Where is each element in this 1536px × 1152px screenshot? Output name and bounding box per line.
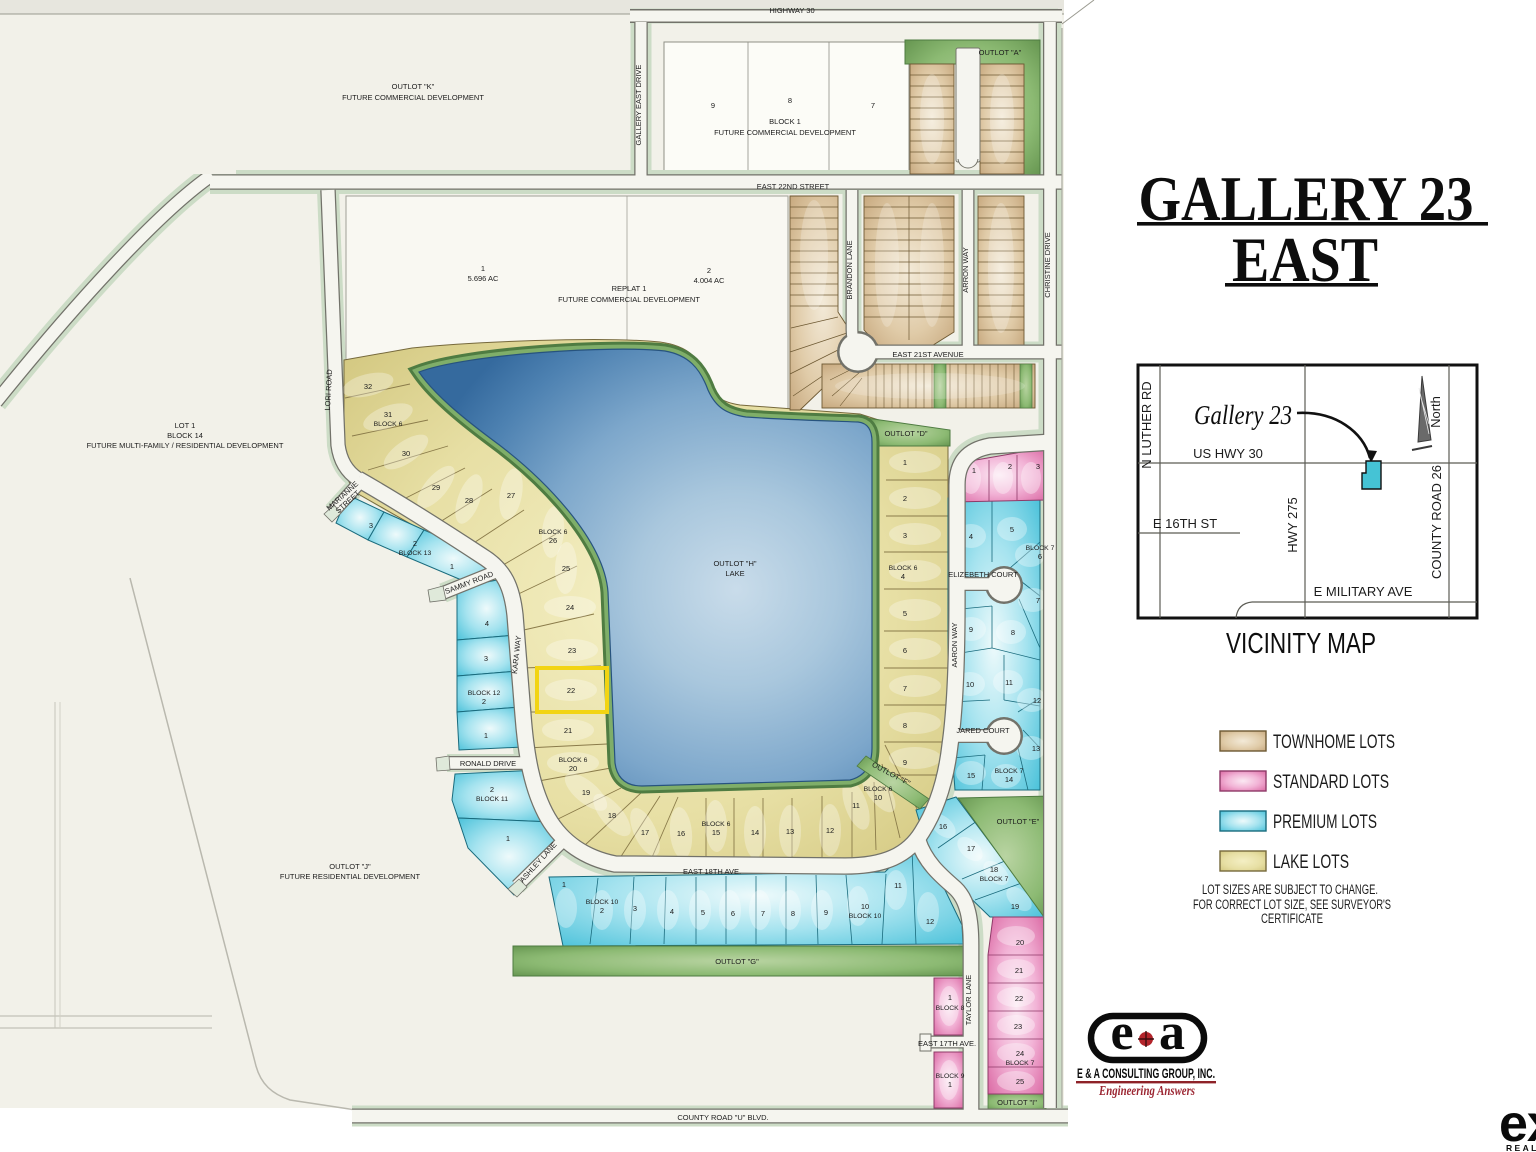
svg-text:17: 17 <box>967 844 975 853</box>
svg-text:BLOCK 8: BLOCK 8 <box>936 1005 965 1012</box>
svg-text:1: 1 <box>506 834 510 843</box>
svg-text:Engineering Answers: Engineering Answers <box>1098 1084 1195 1099</box>
svg-text:13: 13 <box>1032 744 1040 753</box>
svg-text:30: 30 <box>402 449 410 458</box>
svg-text:8: 8 <box>903 721 907 730</box>
svg-text:12: 12 <box>1033 696 1041 705</box>
svg-text:7: 7 <box>1036 596 1040 605</box>
svg-text:9: 9 <box>969 625 973 634</box>
svg-text:5.696 AC: 5.696 AC <box>468 274 499 283</box>
svg-text:15: 15 <box>712 828 720 837</box>
svg-text:23: 23 <box>1014 1022 1022 1031</box>
svg-text:ELIZEBETH COURT: ELIZEBETH COURT <box>948 570 1018 579</box>
svg-text:6: 6 <box>1038 552 1042 561</box>
svg-text:Gallery 23: Gallery 23 <box>1194 400 1292 430</box>
svg-text:a: a <box>1159 1004 1185 1061</box>
svg-text:BLOCK 6: BLOCK 6 <box>559 757 588 764</box>
svg-text:FUTURE RESIDENTIAL DEVELOPMENT: FUTURE RESIDENTIAL DEVELOPMENT <box>280 872 421 881</box>
svg-text:1: 1 <box>972 466 976 475</box>
svg-text:COUNTY ROAD "U" BLVD.: COUNTY ROAD "U" BLVD. <box>677 1113 768 1122</box>
svg-text:EAST 22ND STREET: EAST 22ND STREET <box>757 182 830 191</box>
svg-text:23: 23 <box>568 646 576 655</box>
svg-text:29: 29 <box>432 483 440 492</box>
svg-text:BLOCK 6: BLOCK 6 <box>864 786 893 793</box>
svg-text:4: 4 <box>485 619 489 628</box>
svg-text:22: 22 <box>1015 994 1023 1003</box>
svg-text:GALLERY EAST DRIVE: GALLERY EAST DRIVE <box>634 65 643 146</box>
svg-text:15: 15 <box>967 771 975 780</box>
svg-text:BLOCK 6: BLOCK 6 <box>702 821 731 828</box>
svg-text:28: 28 <box>465 496 473 505</box>
svg-text:25: 25 <box>562 564 570 573</box>
svg-text:FUTURE COMMERCIAL DEVELOPMENT: FUTURE COMMERCIAL DEVELOPMENT <box>342 93 484 102</box>
svg-text:5: 5 <box>701 908 705 917</box>
svg-text:2: 2 <box>903 494 907 503</box>
svg-text:7: 7 <box>761 909 765 918</box>
svg-text:14: 14 <box>751 828 759 837</box>
svg-text:5: 5 <box>903 609 907 618</box>
svg-text:1: 1 <box>948 993 952 1002</box>
svg-text:25: 25 <box>1016 1077 1024 1086</box>
svg-text:FUTURE COMMERCIAL DEVELOPMENT: FUTURE COMMERCIAL DEVELOPMENT <box>558 295 700 304</box>
svg-text:14: 14 <box>1005 775 1013 784</box>
svg-text:3: 3 <box>1036 462 1040 471</box>
svg-text:TOWNHOME LOTS: TOWNHOME LOTS <box>1273 731 1395 753</box>
svg-text:LOT SIZES ARE SUBJECT TO CHANG: LOT SIZES ARE SUBJECT TO CHANGE. <box>1202 882 1378 897</box>
svg-text:BLOCK 13: BLOCK 13 <box>399 550 432 557</box>
svg-text:AARON WAY: AARON WAY <box>950 622 959 667</box>
svg-text:1: 1 <box>481 264 485 273</box>
svg-text:BLOCK 7: BLOCK 7 <box>1006 1060 1035 1067</box>
svg-text:CHRISTINE DRIVE: CHRISTINE DRIVE <box>1043 232 1052 297</box>
svg-text:9: 9 <box>711 101 715 110</box>
svg-text:24: 24 <box>566 603 574 612</box>
svg-text:2: 2 <box>490 785 494 794</box>
svg-text:3: 3 <box>633 904 637 913</box>
svg-text:19: 19 <box>1011 902 1019 911</box>
svg-text:ARRON WAY: ARRON WAY <box>961 247 970 292</box>
svg-text:7: 7 <box>871 101 875 110</box>
svg-text:BLOCK 11: BLOCK 11 <box>476 796 508 803</box>
svg-text:LOT 1: LOT 1 <box>175 421 196 430</box>
svg-text:VICINITY MAP: VICINITY MAP <box>1226 628 1376 660</box>
svg-text:2: 2 <box>600 906 604 915</box>
svg-text:16: 16 <box>677 829 685 838</box>
svg-text:BLOCK 1: BLOCK 1 <box>769 117 801 126</box>
svg-text:7: 7 <box>903 684 907 693</box>
svg-text:21: 21 <box>564 726 572 735</box>
svg-text:27: 27 <box>507 491 515 500</box>
svg-text:BLOCK 6: BLOCK 6 <box>889 565 918 572</box>
svg-text:19: 19 <box>582 788 590 797</box>
svg-text:10: 10 <box>861 902 869 911</box>
svg-text:BLOCK 14: BLOCK 14 <box>167 431 203 440</box>
svg-text:OUTLOT "K": OUTLOT "K" <box>392 82 435 91</box>
svg-text:FUTURE MULTI-FAMILY / RESIDENT: FUTURE MULTI-FAMILY / RESIDENTIAL DEVELO… <box>87 441 284 450</box>
svg-text:2: 2 <box>1008 462 1012 471</box>
svg-text:BLOCK 6: BLOCK 6 <box>539 529 568 536</box>
svg-text:18: 18 <box>608 811 616 820</box>
svg-text:3: 3 <box>903 531 907 540</box>
svg-text:22: 22 <box>567 686 575 695</box>
svg-text:1: 1 <box>562 880 566 889</box>
svg-text:BLOCK 10: BLOCK 10 <box>586 899 619 906</box>
svg-text:BLOCK 7: BLOCK 7 <box>995 768 1024 775</box>
svg-text:3: 3 <box>484 654 488 663</box>
svg-text:BLOCK 9: BLOCK 9 <box>936 1073 965 1080</box>
svg-text:FOR CORRECT LOT SIZE, SEE SURV: FOR CORRECT LOT SIZE, SEE SURVEYOR'S <box>1193 897 1391 912</box>
svg-text:EAST 21ST AVENUE: EAST 21ST AVENUE <box>892 350 963 359</box>
svg-text:11: 11 <box>1005 678 1013 687</box>
svg-text:9: 9 <box>824 908 828 917</box>
svg-text:10: 10 <box>874 793 882 802</box>
svg-text:5: 5 <box>1010 525 1014 534</box>
svg-text:US HWY 30: US HWY 30 <box>1193 446 1263 461</box>
svg-text:4: 4 <box>670 907 674 916</box>
svg-text:E 16TH ST: E 16TH ST <box>1153 516 1217 531</box>
svg-text:4: 4 <box>901 572 905 581</box>
svg-text:2: 2 <box>482 697 486 706</box>
svg-text:24: 24 <box>1016 1049 1024 1058</box>
svg-text:BLOCK 10: BLOCK 10 <box>849 913 882 920</box>
svg-text:6: 6 <box>731 909 735 918</box>
svg-text:JARED COURT: JARED COURT <box>956 726 1010 735</box>
svg-text:EAST 18TH AVE.: EAST 18TH AVE. <box>683 867 741 876</box>
svg-text:10: 10 <box>966 680 974 689</box>
svg-text:13: 13 <box>786 827 794 836</box>
svg-text:OUTLOT "J": OUTLOT "J" <box>329 862 371 871</box>
svg-text:12: 12 <box>826 826 834 835</box>
svg-text:21: 21 <box>1015 966 1023 975</box>
svg-text:1: 1 <box>948 1080 952 1089</box>
svg-text:e: e <box>1110 1004 1133 1061</box>
svg-text:8: 8 <box>791 909 795 918</box>
svg-text:OUTLOT "I": OUTLOT "I" <box>997 1098 1037 1107</box>
svg-text:North: North <box>1428 396 1443 428</box>
svg-text:PREMIUM LOTS: PREMIUM LOTS <box>1273 811 1377 833</box>
svg-text:OUTLOT "H": OUTLOT "H" <box>713 559 756 568</box>
svg-text:E MILITARY AVE: E MILITARY AVE <box>1314 584 1413 599</box>
svg-text:12: 12 <box>926 917 934 926</box>
svg-text:COUNTY ROAD 26: COUNTY ROAD 26 <box>1429 465 1444 579</box>
svg-text:4.004 AC: 4.004 AC <box>694 276 725 285</box>
svg-text:EAST 17TH AVE.: EAST 17TH AVE. <box>918 1039 976 1048</box>
svg-text:4: 4 <box>969 532 973 541</box>
svg-text:32: 32 <box>364 382 372 391</box>
svg-text:1: 1 <box>484 731 488 740</box>
svg-text:18: 18 <box>990 865 998 874</box>
svg-text:CERTIFICATE: CERTIFICATE <box>1261 911 1323 926</box>
svg-text:8: 8 <box>1011 628 1015 637</box>
svg-text:FUTURE COMMERCIAL DEVELOPMENT: FUTURE COMMERCIAL DEVELOPMENT <box>714 128 856 137</box>
svg-text:31: 31 <box>384 410 392 419</box>
svg-text:3: 3 <box>369 521 373 530</box>
svg-text:HWY 275: HWY 275 <box>1285 497 1300 552</box>
svg-text:BRANDON LANE: BRANDON LANE <box>845 240 854 299</box>
svg-text:6: 6 <box>903 646 907 655</box>
svg-text:OUTLOT "A": OUTLOT "A" <box>979 48 1022 57</box>
svg-text:BLOCK 7: BLOCK 7 <box>1026 545 1055 552</box>
svg-text:REAL: REAL <box>1506 1143 1536 1152</box>
svg-text:11: 11 <box>852 801 860 810</box>
svg-text:N LUTHER RD: N LUTHER RD <box>1139 381 1154 468</box>
svg-text:26: 26 <box>549 536 557 545</box>
svg-text:1: 1 <box>903 458 907 467</box>
svg-text:STANDARD LOTS: STANDARD LOTS <box>1273 771 1389 793</box>
svg-text:E & A CONSULTING GROUP, INC.: E & A CONSULTING GROUP, INC. <box>1077 1065 1215 1081</box>
svg-text:OUTLOT "D": OUTLOT "D" <box>884 429 927 438</box>
svg-text:BLOCK 7: BLOCK 7 <box>980 876 1009 883</box>
svg-text:11: 11 <box>894 881 902 890</box>
svg-text:LAKE: LAKE <box>725 569 744 578</box>
svg-text:REPLAT 1: REPLAT 1 <box>612 284 647 293</box>
svg-text:2: 2 <box>707 266 711 275</box>
svg-text:17: 17 <box>641 828 649 837</box>
svg-text:OUTLOT "E": OUTLOT "E" <box>997 817 1040 826</box>
svg-text:RONALD DRIVE: RONALD DRIVE <box>460 759 516 768</box>
svg-text:9: 9 <box>903 758 907 767</box>
svg-text:LAKE LOTS: LAKE LOTS <box>1273 851 1349 873</box>
svg-text:20: 20 <box>1016 938 1024 947</box>
svg-text:TAYLOR LANE: TAYLOR LANE <box>964 975 973 1026</box>
svg-text:BLOCK 6: BLOCK 6 <box>374 421 403 428</box>
svg-text:HIGHWAY 30: HIGHWAY 30 <box>769 6 814 15</box>
svg-text:20: 20 <box>569 764 577 773</box>
svg-text:1: 1 <box>450 562 454 571</box>
svg-text:OUTLOT "G": OUTLOT "G" <box>715 957 759 966</box>
svg-text:BLOCK 12: BLOCK 12 <box>468 690 501 697</box>
svg-text:8: 8 <box>788 96 792 105</box>
svg-text:2: 2 <box>413 539 417 548</box>
svg-text:16: 16 <box>939 822 947 831</box>
